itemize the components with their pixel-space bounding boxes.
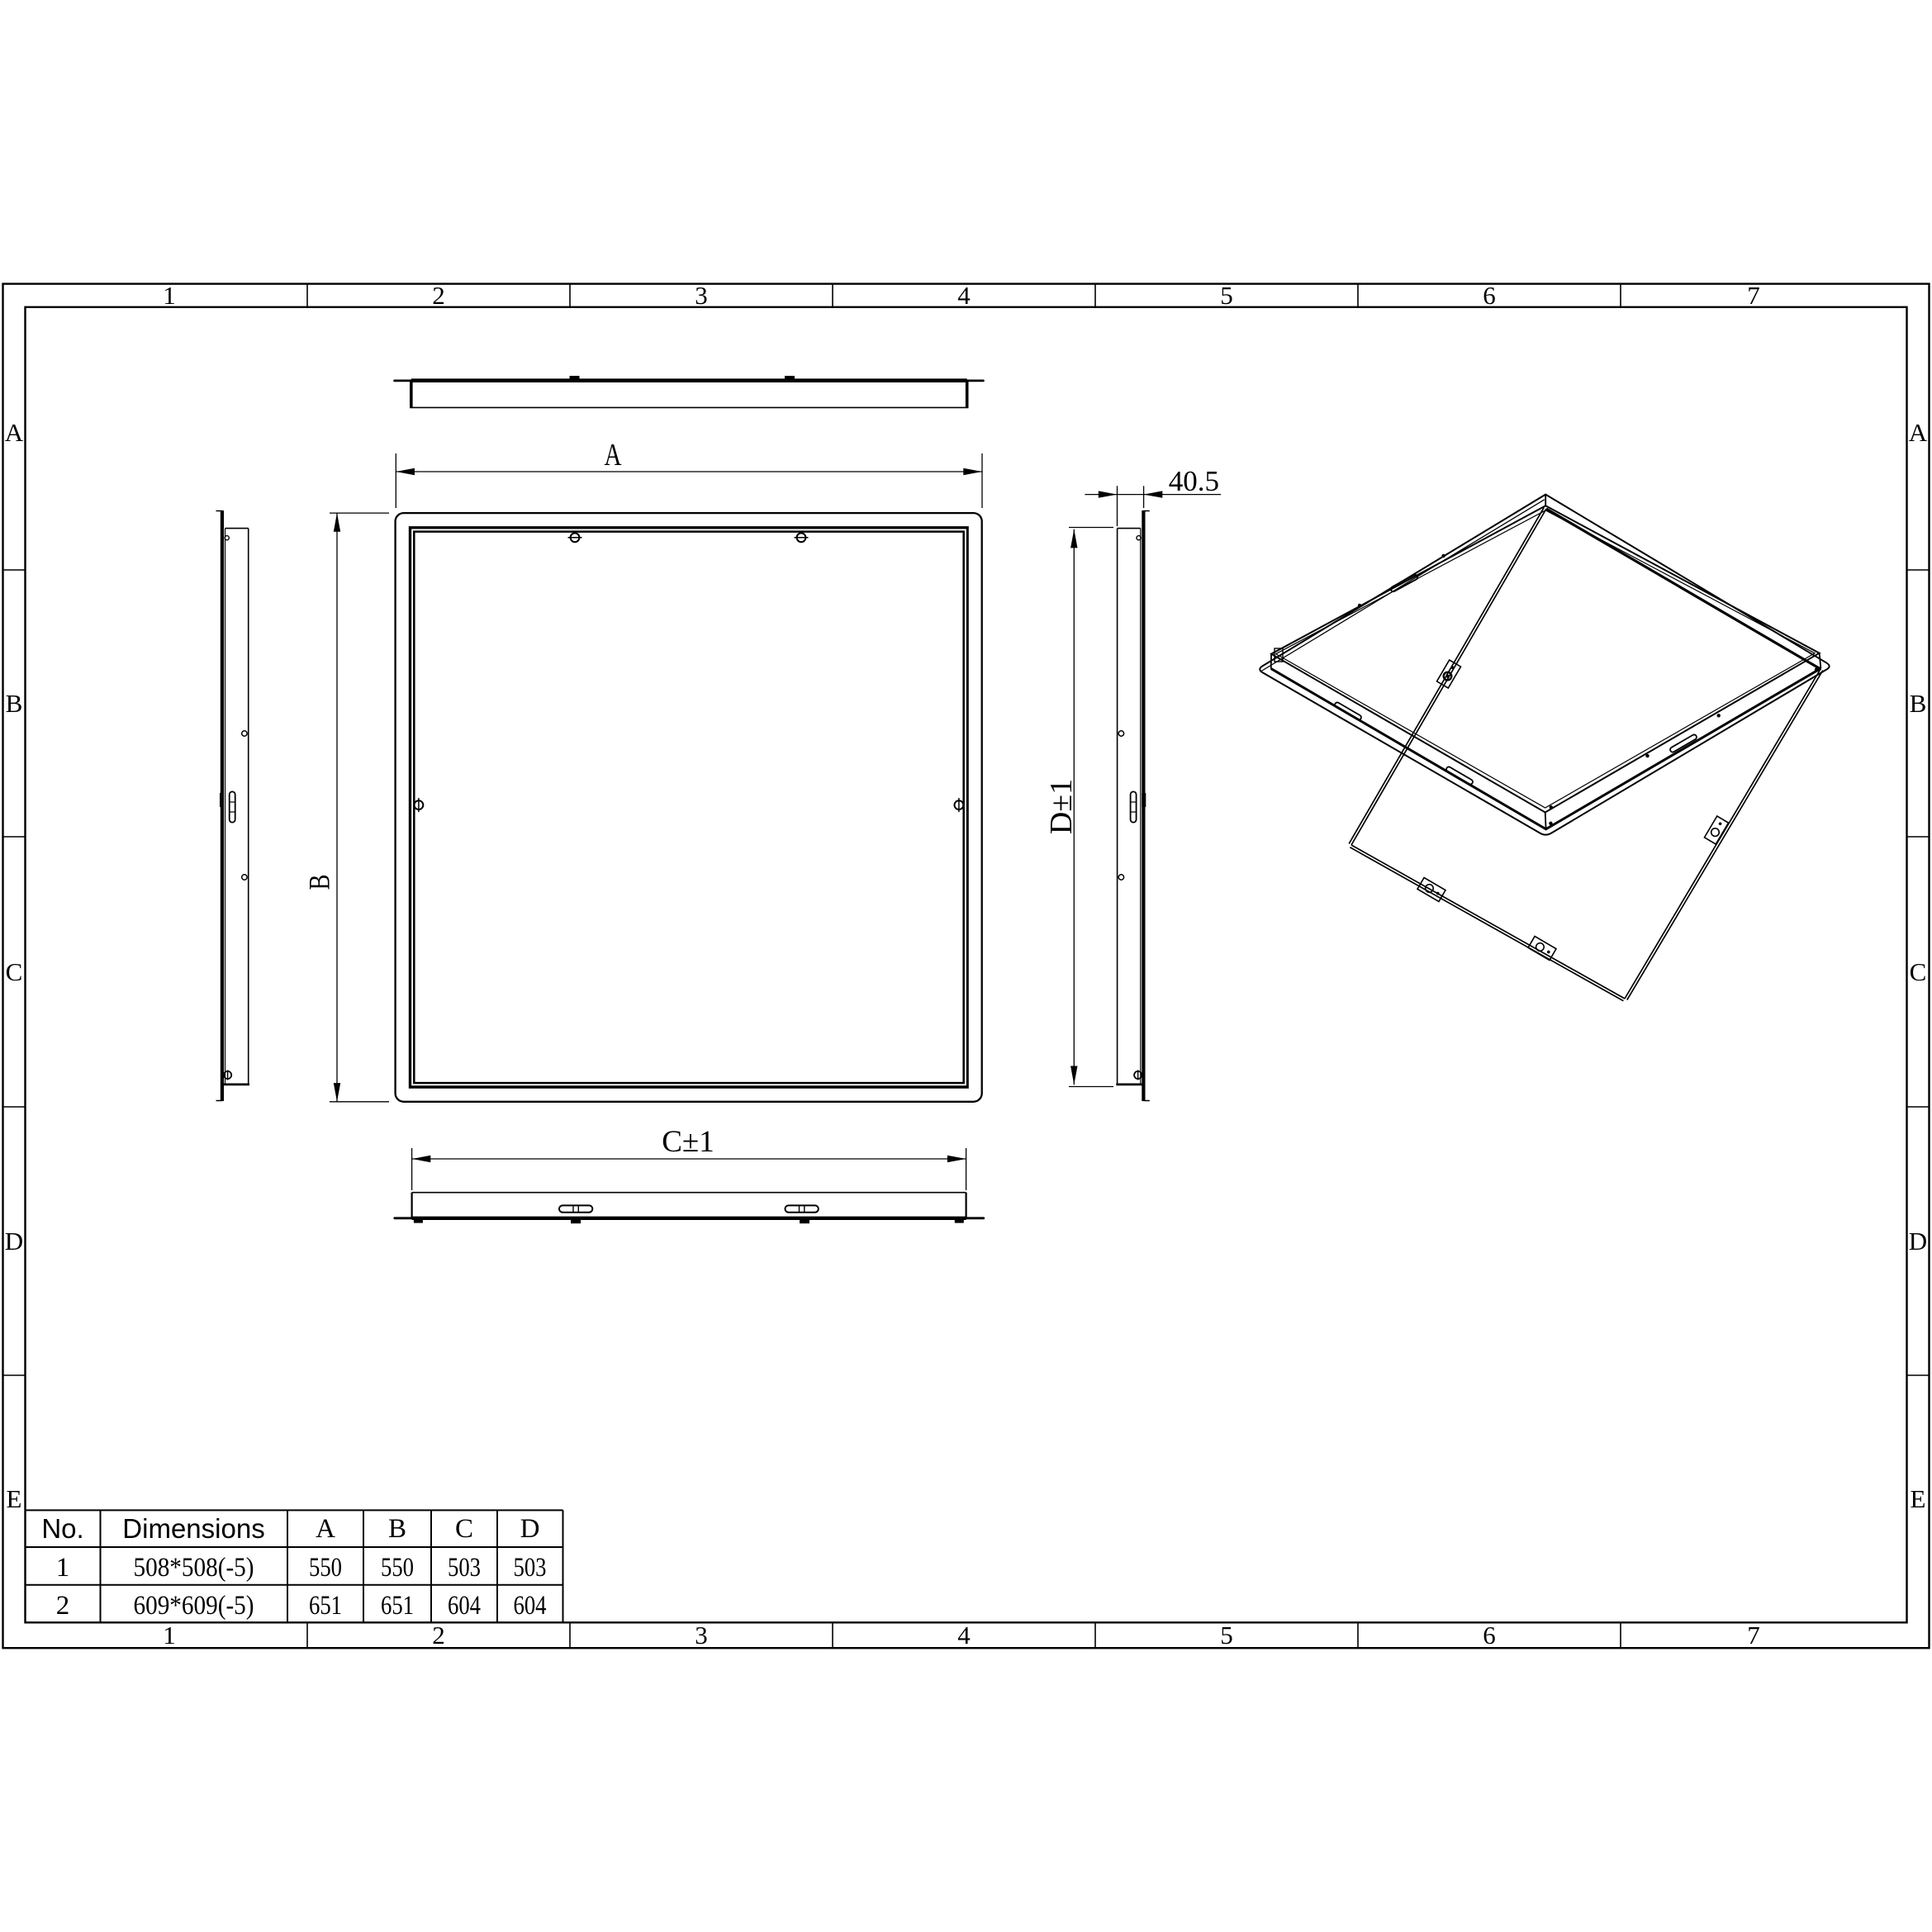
svg-text:651: 651 — [309, 1591, 342, 1621]
svg-text:1: 1 — [163, 1621, 176, 1650]
svg-text:550: 550 — [381, 1553, 414, 1583]
svg-text:C: C — [1910, 957, 1927, 986]
svg-text:A: A — [5, 418, 24, 447]
svg-text:2: 2 — [432, 1621, 445, 1650]
svg-text:D: D — [1909, 1227, 1927, 1256]
svg-text:D: D — [520, 1514, 540, 1544]
svg-text:C±1: C±1 — [662, 1125, 714, 1159]
svg-text:3: 3 — [695, 281, 708, 310]
svg-text:508*508(-5): 508*508(-5) — [134, 1553, 254, 1583]
svg-text:4: 4 — [957, 281, 971, 310]
svg-text:C: C — [455, 1514, 473, 1544]
svg-text:2: 2 — [432, 281, 445, 310]
svg-text:A: A — [605, 438, 622, 472]
svg-text:1: 1 — [56, 1553, 70, 1583]
svg-text:651: 651 — [381, 1591, 414, 1621]
svg-text:A: A — [316, 1514, 335, 1544]
svg-text:C: C — [6, 957, 23, 986]
svg-text:604: 604 — [448, 1591, 481, 1621]
svg-text:2: 2 — [56, 1591, 70, 1621]
svg-text:1: 1 — [163, 281, 176, 310]
svg-text:No.: No. — [41, 1513, 83, 1544]
svg-text:B: B — [1910, 689, 1927, 718]
svg-text:550: 550 — [309, 1553, 342, 1583]
svg-text:503: 503 — [448, 1553, 481, 1583]
svg-text:609*609(-5): 609*609(-5) — [134, 1591, 254, 1621]
svg-text:E: E — [1911, 1484, 1926, 1513]
svg-text:Dimensions: Dimensions — [122, 1513, 264, 1544]
svg-text:B: B — [303, 875, 336, 890]
svg-text:40.5: 40.5 — [1169, 465, 1219, 497]
svg-text:B: B — [6, 689, 23, 718]
svg-text:D±1: D±1 — [1044, 779, 1079, 834]
svg-text:4: 4 — [957, 1621, 971, 1650]
svg-text:7: 7 — [1747, 281, 1760, 310]
svg-text:6: 6 — [1483, 1621, 1496, 1650]
svg-text:B: B — [388, 1514, 406, 1544]
svg-text:5: 5 — [1220, 1621, 1233, 1650]
svg-text:503: 503 — [514, 1553, 547, 1583]
svg-text:7: 7 — [1747, 1621, 1760, 1650]
svg-text:5: 5 — [1220, 281, 1233, 310]
svg-text:604: 604 — [514, 1591, 547, 1621]
svg-text:6: 6 — [1483, 281, 1496, 310]
svg-text:3: 3 — [695, 1621, 708, 1650]
svg-text:E: E — [7, 1484, 22, 1513]
svg-text:A: A — [1909, 418, 1928, 447]
svg-text:D: D — [5, 1227, 23, 1256]
